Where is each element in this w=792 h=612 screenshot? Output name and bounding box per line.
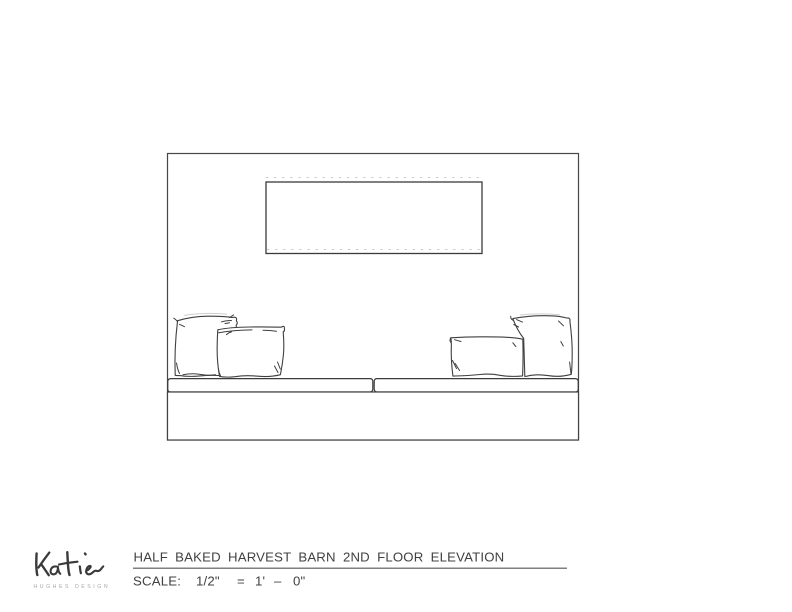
svg-text:SCALE:1/2"=1'–0": SCALE:1/2"=1'–0" — [133, 573, 306, 588]
svg-text:HUGHES DESIGN: HUGHES DESIGN — [34, 584, 111, 590]
svg-text:HALF BAKED HARVEST BARN 2ND FL: HALF BAKED HARVEST BARN 2ND FLOOR ELEVAT… — [134, 550, 505, 565]
